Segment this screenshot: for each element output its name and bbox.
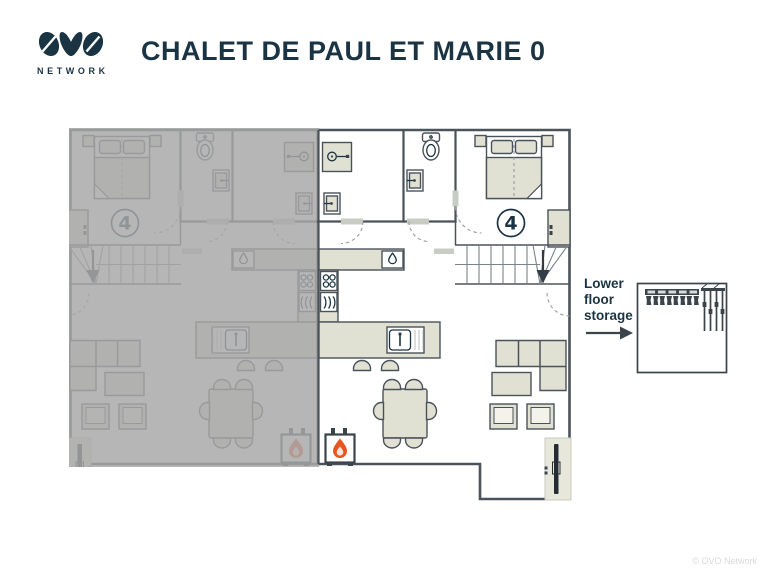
floor-plan: 4 4	[0, 0, 767, 575]
lower-floor-storage-label: Lower floor storage	[584, 276, 650, 324]
inactive-area-overlay	[69, 128, 319, 467]
capacity-badge-number: 4	[504, 213, 517, 235]
arrow-right-icon	[586, 327, 633, 340]
copyright-text: © OVO Network	[692, 556, 757, 566]
floor-plan-page: NETWORK CHALET DE PAUL ET MARIE 0	[0, 0, 767, 575]
